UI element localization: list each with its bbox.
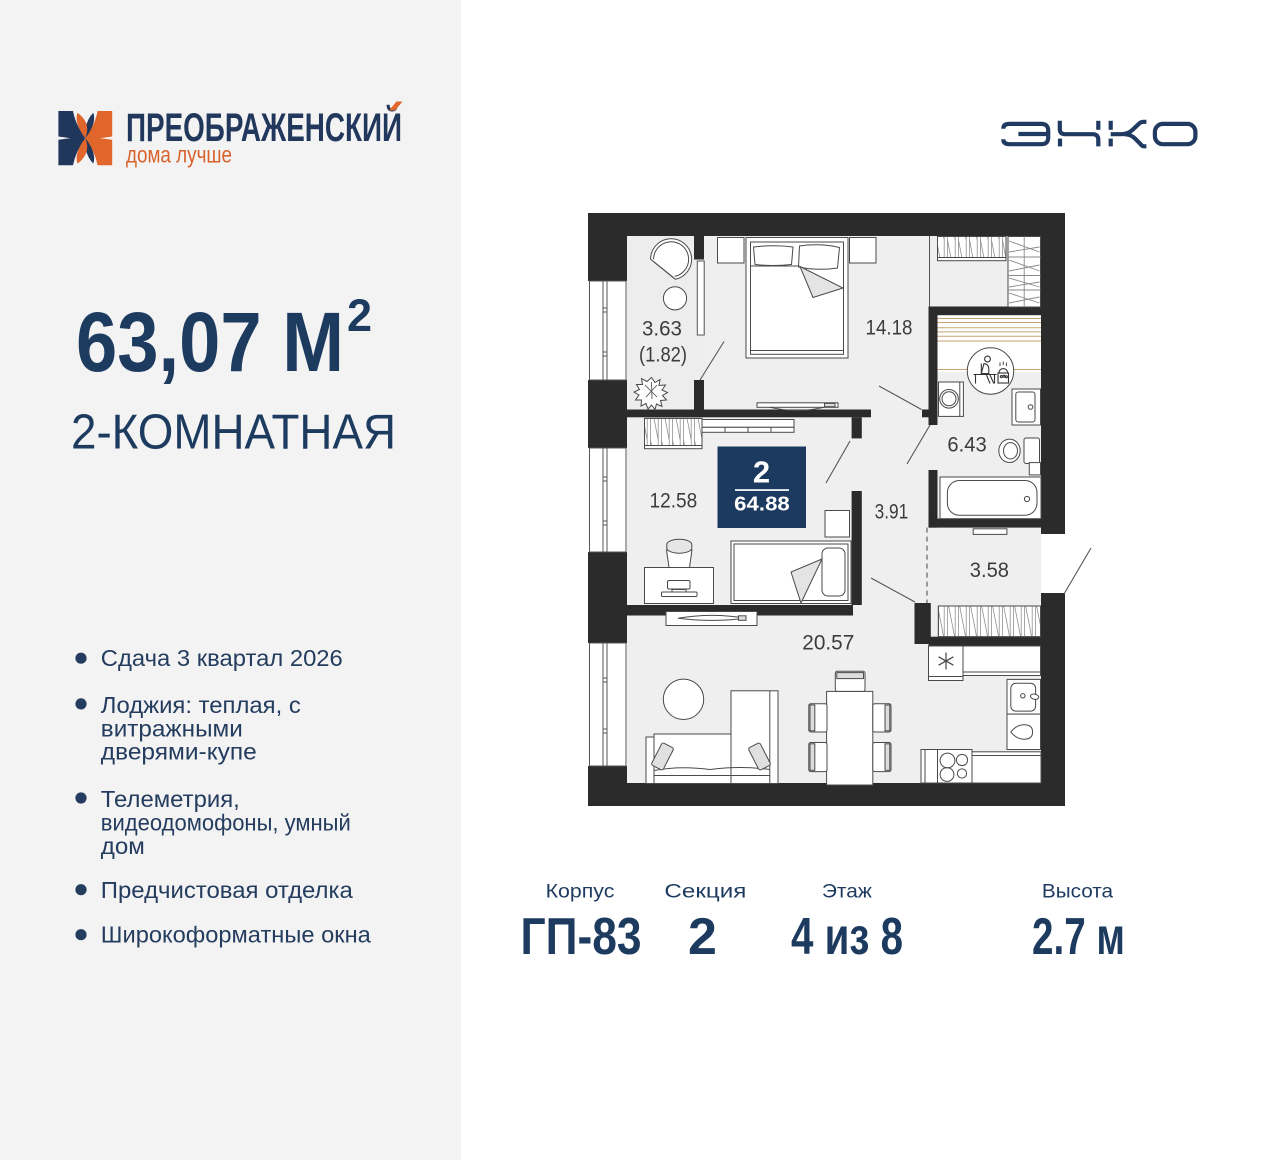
svg-text:ГП-83: ГП-83	[521, 908, 642, 966]
svg-text:3.58: 3.58	[970, 558, 1009, 582]
svg-text:(1.82): (1.82)	[639, 343, 687, 367]
svg-text:20.57: 20.57	[802, 631, 854, 655]
svg-text:Телеметрия,: Телеметрия,	[101, 786, 240, 812]
svg-text:Высота: Высота	[1042, 882, 1114, 903]
svg-text:дома лучше: дома лучше	[126, 142, 232, 168]
svg-text:6.43: 6.43	[947, 432, 986, 456]
svg-text:64.88: 64.88	[734, 493, 790, 516]
svg-text:2-КОМНАТНАЯ: 2-КОМНАТНАЯ	[71, 404, 396, 459]
svg-text:63,07 М: 63,07 М	[76, 295, 344, 389]
svg-text:2.7 м: 2.7 м	[1032, 908, 1125, 966]
svg-text:видеодомофоны, умный: видеодомофоны, умный	[101, 810, 351, 836]
svg-text:Предчистовая отделка: Предчистовая отделка	[101, 877, 353, 903]
svg-text:Широкоформатные окна: Широкоформатные окна	[101, 922, 371, 948]
svg-text:дом: дом	[101, 833, 145, 859]
svg-text:2: 2	[347, 290, 372, 341]
svg-text:14.18: 14.18	[866, 316, 913, 340]
svg-text:12.58: 12.58	[650, 489, 698, 513]
svg-text:Сдача 3 квартал 2026: Сдача 3 квартал 2026	[101, 645, 343, 671]
svg-text:дверями-купе: дверями-купе	[101, 738, 257, 764]
svg-text:Секция: Секция	[664, 882, 746, 903]
svg-text:витражными: витражными	[101, 715, 243, 741]
svg-text:Корпус: Корпус	[546, 882, 615, 903]
svg-text:2: 2	[753, 455, 770, 490]
svg-text:3.63: 3.63	[642, 317, 682, 341]
svg-text:3.91: 3.91	[875, 500, 909, 524]
svg-text:4 из 8: 4 из 8	[791, 908, 903, 966]
svg-text:2: 2	[688, 908, 717, 966]
svg-text:Лоджия: теплая, с: Лоджия: теплая, с	[101, 692, 301, 718]
svg-text:Этаж: Этаж	[822, 882, 872, 903]
